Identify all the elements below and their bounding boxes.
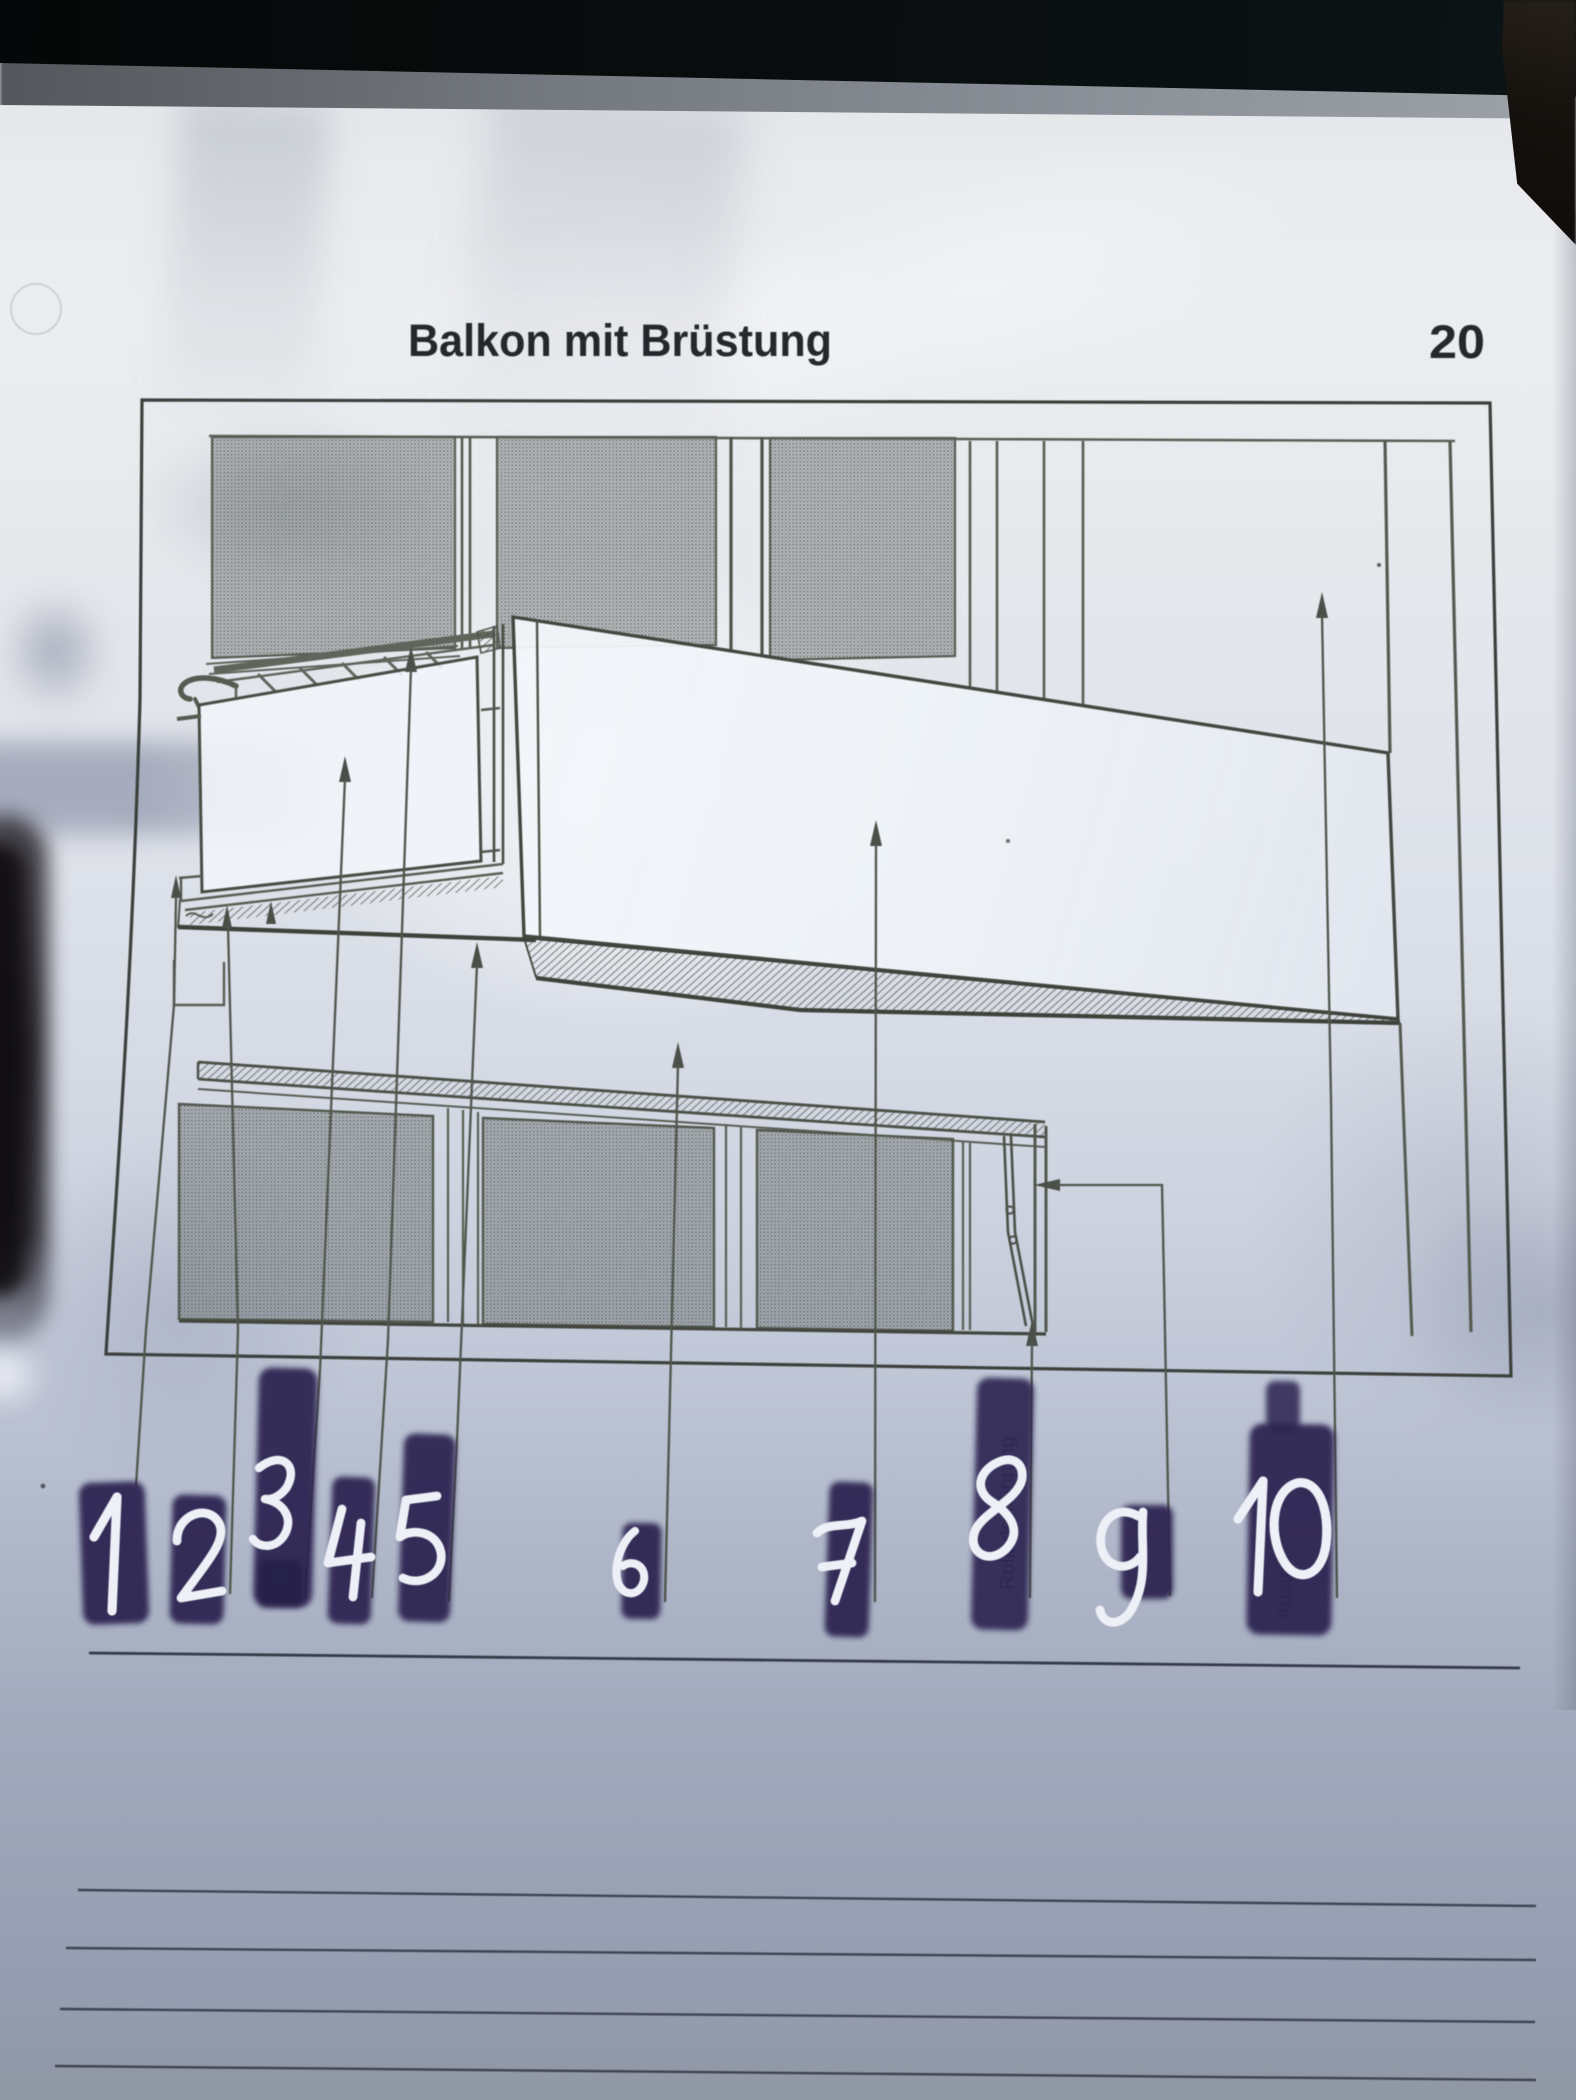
svg-text:Rolladenführung: Rolladenführung — [996, 1436, 1019, 1590]
svg-text:Balkon mit Brüstung: Balkon mit Brüstung — [408, 315, 832, 366]
svg-text:20: 20 — [1429, 315, 1485, 368]
svg-text:Austritt: Austritt — [1274, 1554, 1297, 1620]
